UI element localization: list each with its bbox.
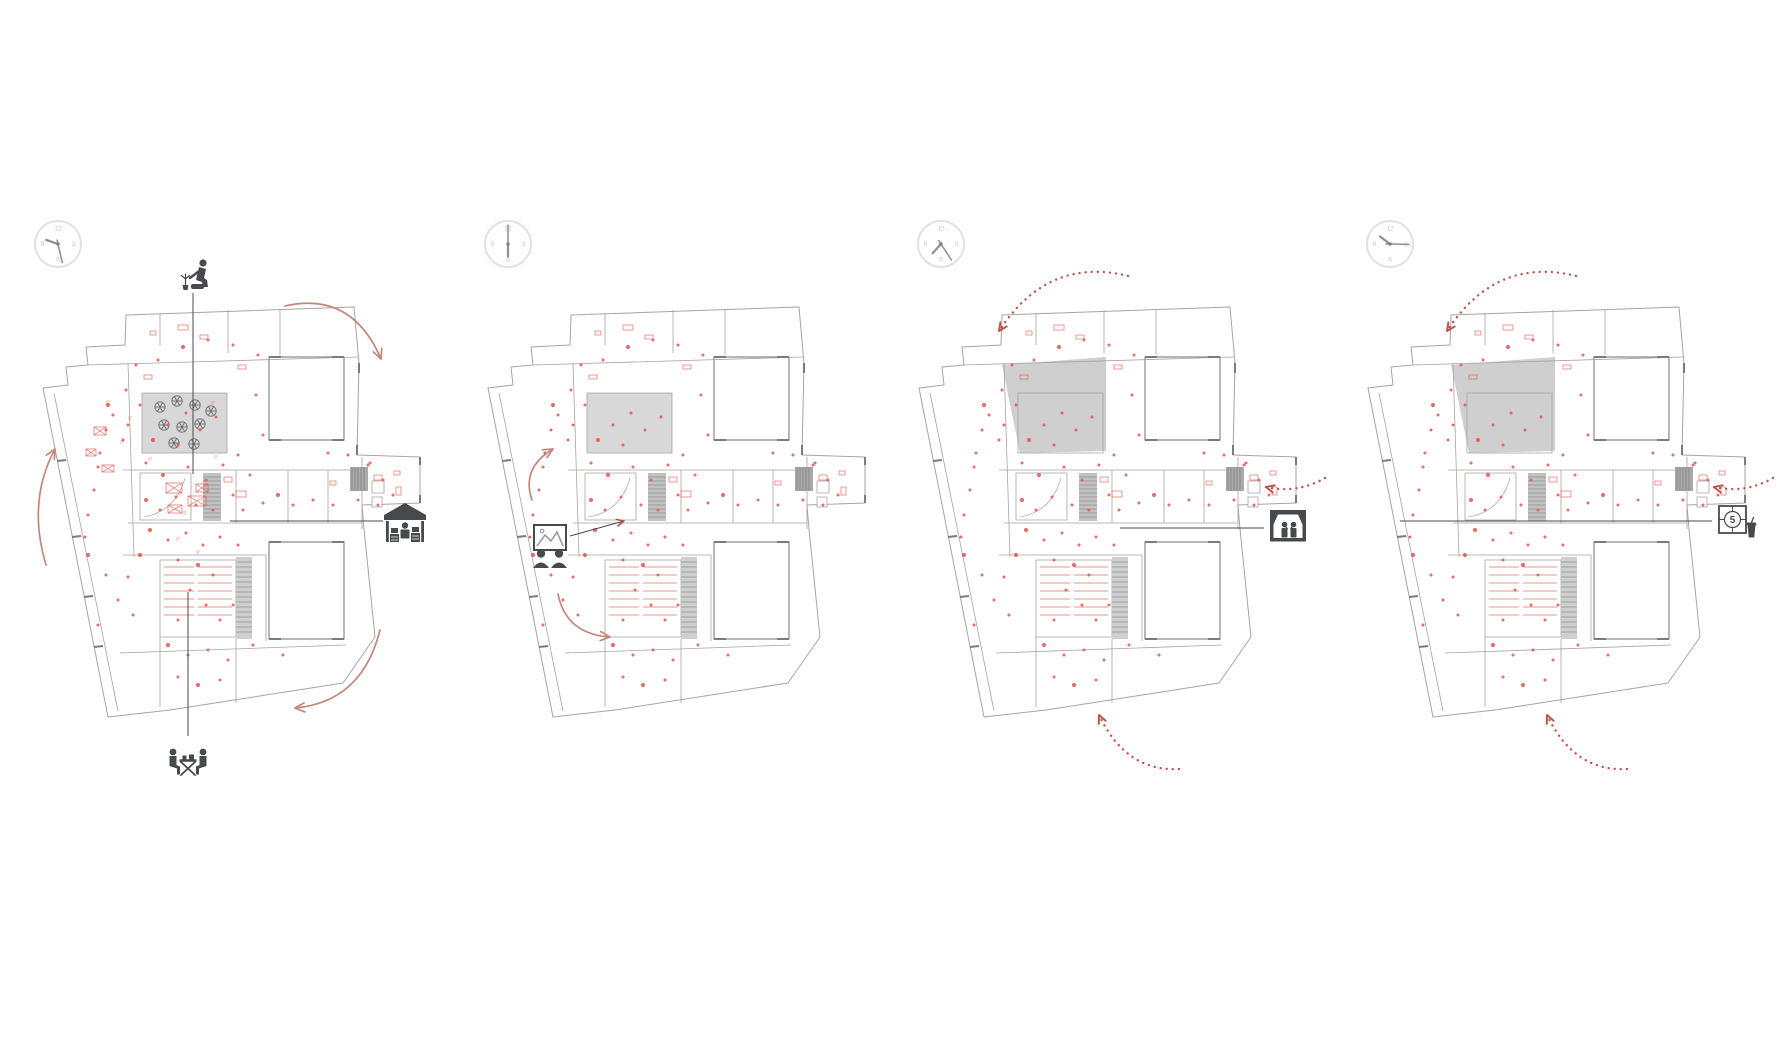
- clock-numeral: 12: [1386, 226, 1394, 233]
- clock-10:15: 12369: [1367, 221, 1413, 267]
- clock-09:33: 12369: [35, 221, 81, 267]
- floor-plan-drawing: [488, 307, 865, 717]
- dotted-movement-arrow: [999, 272, 1128, 331]
- art-viewing-icon: [533, 525, 567, 568]
- courtyard-garden-shading: [1451, 357, 1555, 453]
- clock-numeral: 9: [41, 241, 45, 248]
- panels-root: 12369123691236912369: [35, 221, 1773, 775]
- clock-numeral: 9: [491, 241, 495, 248]
- courtyard-garden-shading: [587, 393, 672, 453]
- dotted-movement-arrow: [1714, 478, 1773, 489]
- plan-3-performance: 12369: [918, 221, 1325, 769]
- clock-numeral: 3: [522, 241, 526, 248]
- solid-movement-arrow: [38, 449, 55, 565]
- clock-numeral: 3: [955, 241, 959, 248]
- floor-plan-drawing: [1368, 307, 1745, 717]
- clock-numeral: 6: [56, 257, 60, 264]
- clock-numeral: 6: [1388, 257, 1392, 264]
- dotted-movement-arrow: [1547, 715, 1627, 769]
- clock-06:00: 12369: [485, 221, 531, 267]
- floor-plan-scenes: 5 12369123691236912369: [0, 0, 1783, 1042]
- clock-numeral: 6: [939, 257, 943, 264]
- clock-numeral: 3: [72, 241, 76, 248]
- solid-movement-arrow: [529, 449, 553, 500]
- film-screening-icon: [1719, 506, 1757, 538]
- courtyard-garden-shading: [1002, 357, 1106, 453]
- plan-4-cinema: 12369: [1367, 221, 1773, 769]
- floor-plan-drawing: [43, 307, 420, 717]
- gardening-person-icon: [182, 259, 209, 290]
- movement-arrowhead: [1543, 713, 1553, 723]
- plan-2-exhibition: 12369: [485, 221, 865, 717]
- movement-arrowhead: [1095, 713, 1105, 723]
- solid-movement-arrow: [285, 303, 381, 359]
- clock-numeral: 12: [54, 226, 62, 233]
- dotted-movement-arrow: [1447, 272, 1576, 331]
- diagram-canvas: 5 12369123691236912369: [0, 0, 1783, 1042]
- floor-plan-drawing: [919, 307, 1296, 717]
- solid-movement-arrow: [558, 594, 610, 637]
- clock-hand: [933, 244, 941, 253]
- plan-1-market-morning: 12369: [35, 221, 426, 775]
- clock-hand: [1380, 236, 1390, 244]
- clock-numeral: 9: [924, 241, 928, 248]
- stage-performance-icon: [1270, 510, 1306, 542]
- clock-hand: [46, 240, 58, 244]
- dotted-movement-arrow: [1099, 715, 1179, 769]
- communal-table-icon: [170, 749, 207, 775]
- clock-numeral: 6: [506, 257, 510, 264]
- clock-07:24: 12369: [918, 221, 964, 267]
- clock-numeral: 9: [1373, 241, 1377, 248]
- clock-numeral: 12: [937, 226, 945, 233]
- solid-movement-arrow: [295, 630, 380, 708]
- market-stall-icon: [384, 503, 426, 542]
